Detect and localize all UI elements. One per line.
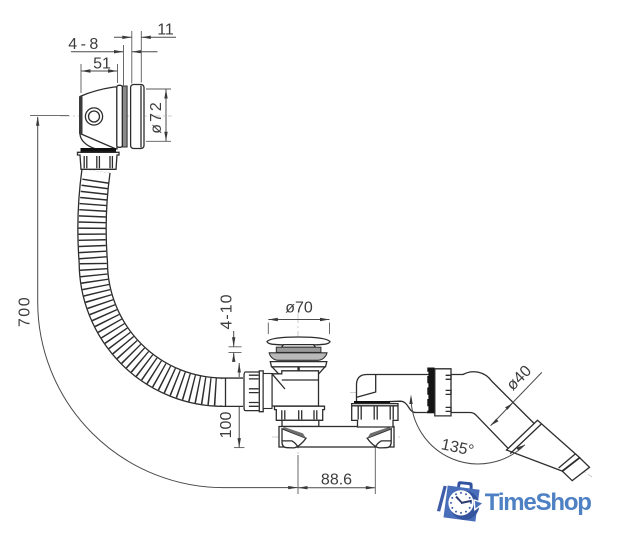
- svg-text:4-10: 4-10: [219, 293, 236, 329]
- svg-text:TimeShop: TimeShop: [485, 489, 592, 516]
- svg-text:ø70: ø70: [285, 300, 313, 317]
- svg-text:100: 100: [218, 412, 235, 439]
- svg-text:88.6: 88.6: [321, 472, 352, 489]
- svg-text:ø72: ø72: [148, 100, 165, 134]
- svg-text:4-8: 4-8: [68, 36, 102, 53]
- svg-text:11: 11: [157, 22, 174, 39]
- svg-text:700: 700: [17, 296, 34, 327]
